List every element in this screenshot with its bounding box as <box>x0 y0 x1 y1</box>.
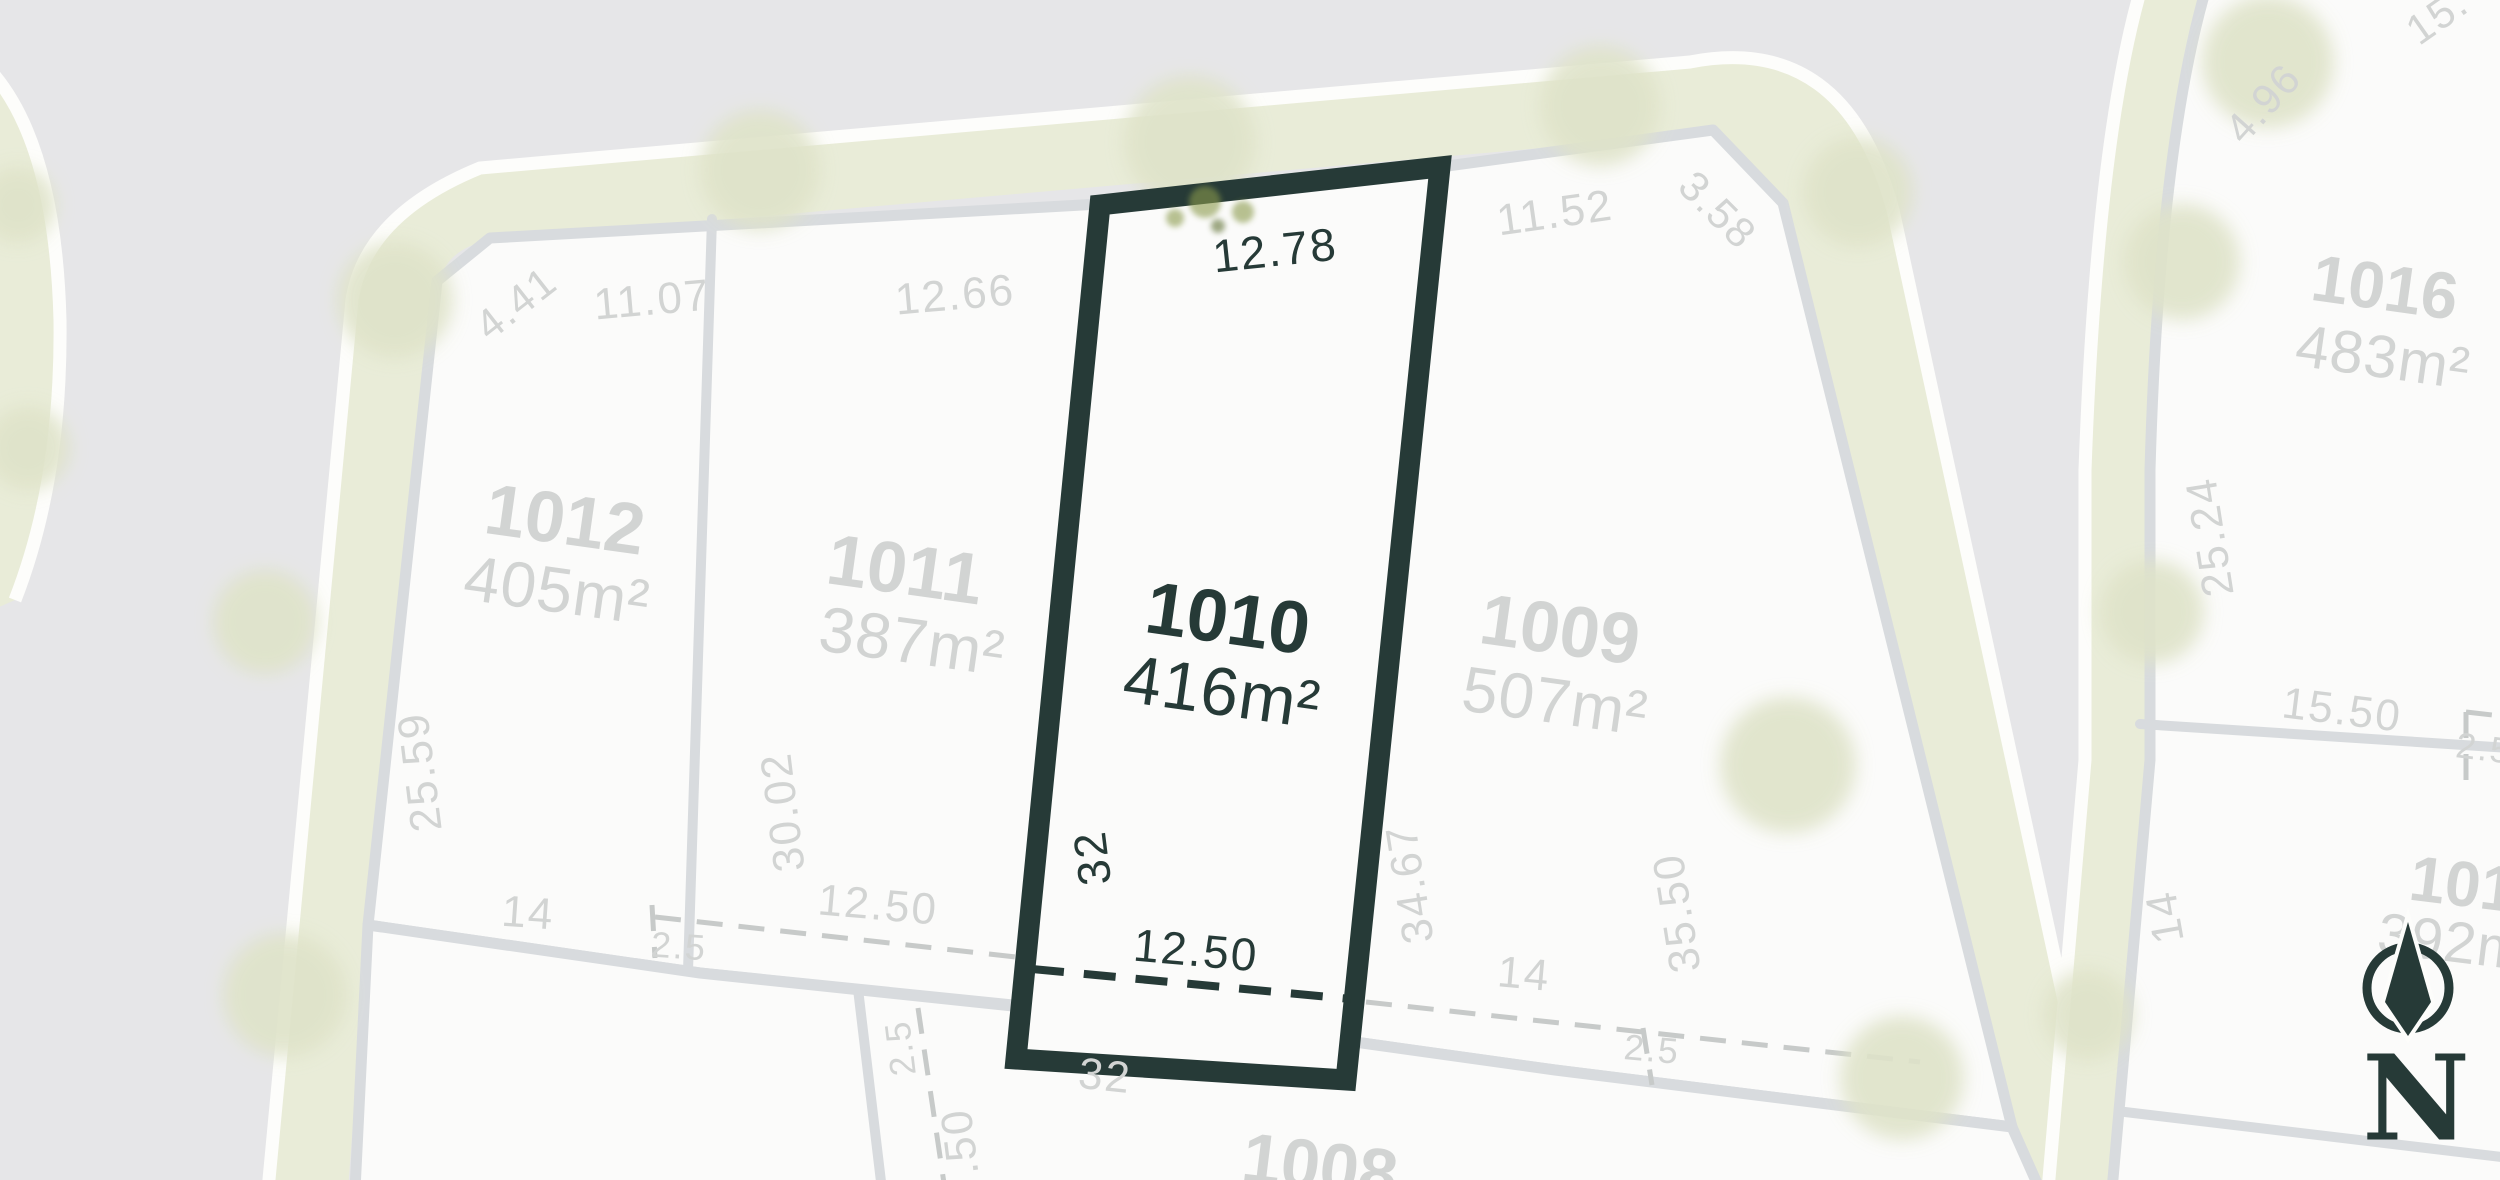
dimension-label: 2.5 <box>2454 724 2500 772</box>
dimension-label: 12.50 <box>816 875 940 934</box>
tree-icon <box>700 110 820 230</box>
compass-north-label: N <box>2362 1029 2470 1168</box>
tree-icon <box>1840 1016 1964 1140</box>
tree-icon <box>223 933 347 1057</box>
dimension-label: 14 <box>2136 887 2193 948</box>
dimension-label: 14 <box>1495 947 1552 1000</box>
dimension-label: .50 <box>932 1106 989 1179</box>
tree-icon <box>337 242 453 358</box>
subdivision-map: 12.7812.6611.074.4111.523.5825.5930.0232… <box>0 0 2500 1180</box>
tree-icon <box>213 570 317 674</box>
tree-icon <box>2100 560 2204 664</box>
dimension-label: 14 <box>500 887 556 940</box>
dimension-label: 2.5 <box>1622 1026 1681 1072</box>
dimension-label: 2.5 <box>650 924 709 969</box>
dimension-label: 12.50 <box>1131 919 1260 982</box>
tree-icon <box>1720 697 1856 833</box>
dimension-label: 12.66 <box>893 265 1017 324</box>
tree-icon <box>1803 137 1913 247</box>
dimension-label: 32 <box>1063 827 1121 888</box>
dimension-label: 2.5 <box>876 1018 924 1079</box>
dimension-label: 11.07 <box>592 271 713 330</box>
tree-icon <box>2043 970 2133 1060</box>
tree-icon <box>2124 204 2240 320</box>
dimension-label: 32 <box>1076 1049 1134 1103</box>
tree-icon <box>1540 46 1660 166</box>
